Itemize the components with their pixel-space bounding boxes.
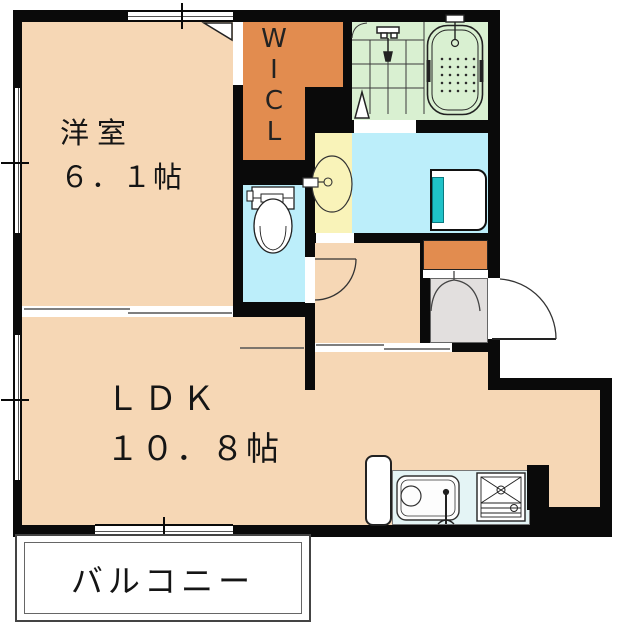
- wicl-letter-i: I: [243, 55, 305, 86]
- hall-sliding-door: [315, 343, 452, 352]
- label-balcony: バルコニー: [15, 556, 311, 602]
- refrigerator: [365, 455, 392, 526]
- wicl-letter-c: C: [243, 86, 305, 117]
- shoe-cabinet: [423, 240, 488, 270]
- toilet-door-gap: [305, 257, 315, 303]
- window-west-upper: [13, 88, 22, 233]
- entrance-genkan: [430, 278, 488, 343]
- front-door-gap: [488, 278, 500, 339]
- label-ldk: ＬＤＫ １０．８帖: [106, 372, 281, 470]
- sliding-partition: [22, 306, 233, 317]
- bathtub-jet-dots: [438, 55, 476, 95]
- western-room-name: 洋室: [60, 110, 184, 152]
- hallway: [315, 243, 420, 343]
- label-wicl: W I C L: [243, 24, 305, 148]
- bath-door-threshold: [354, 120, 416, 133]
- wicl-letter-l: L: [243, 117, 305, 148]
- dimension-tick: [1, 399, 29, 401]
- floor-plan: 洋室 ６．１帖 ＬＤＫ １０．８帖 バルコニー W I C L: [0, 0, 621, 640]
- window-west-lower: [13, 335, 22, 480]
- balcony-name: バルコニー: [71, 562, 255, 600]
- room-toilet: [243, 185, 305, 302]
- washing-machine-pan-drain: [432, 177, 444, 223]
- entrance-step-strip: [423, 270, 488, 278]
- room-ldk-center: [305, 390, 315, 525]
- label-western-room: 洋室 ６．１帖: [60, 110, 184, 196]
- washbasin-counter: [315, 133, 352, 233]
- front-door: [492, 279, 556, 339]
- wicl-opening: [233, 22, 243, 85]
- ldk-name: ＬＤＫ: [106, 372, 281, 420]
- western-room-size: ６．１帖: [60, 154, 184, 196]
- kitchen-wall-stub: [527, 465, 549, 510]
- dimension-tick: [181, 3, 183, 29]
- wicl-letter-w: W: [243, 24, 305, 55]
- ldk-size: １０．８帖: [106, 422, 281, 470]
- washroom-opening: [316, 233, 354, 243]
- dimension-tick: [1, 162, 29, 164]
- kitchen-counter: [392, 470, 530, 525]
